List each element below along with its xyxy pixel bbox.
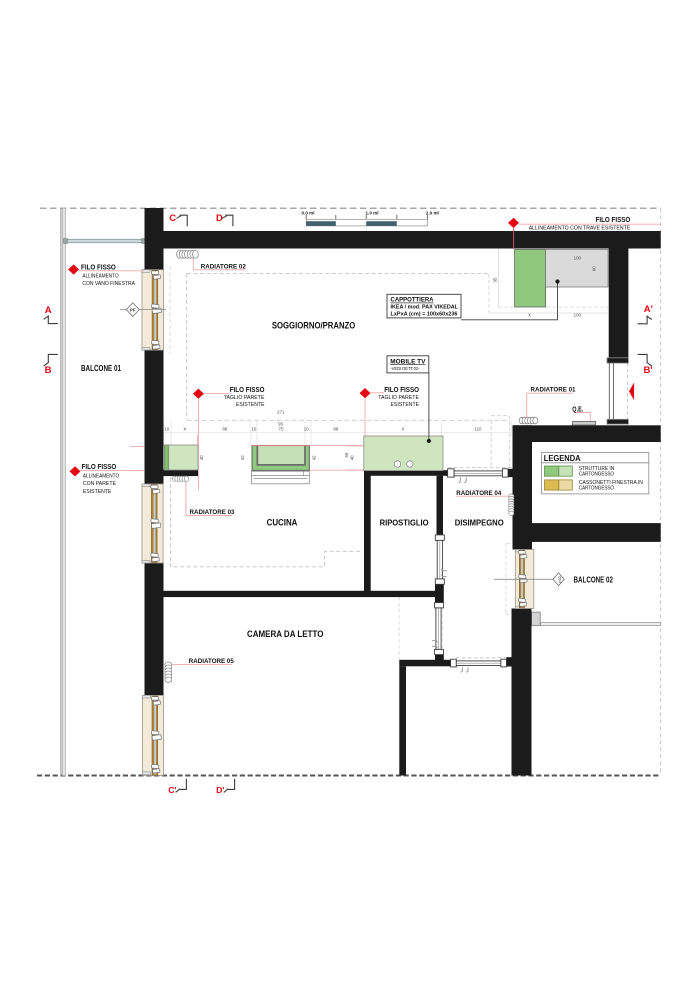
svg-text:BALCONE 01: BALCONE 01: [81, 364, 121, 373]
svg-text:2.0 ml: 2.0 ml: [426, 210, 439, 215]
svg-text:CAPPOTTIERA: CAPPOTTIERA: [391, 298, 435, 304]
svg-text:ALLINEAMENTO: ALLINEAMENTO: [83, 474, 120, 480]
svg-text:TAGLIO PARETE: TAGLIO PARETE: [224, 395, 265, 401]
svg-text:FILO FISSO: FILO FISSO: [384, 387, 419, 394]
svg-text:55: 55: [344, 452, 349, 457]
svg-text:40: 40: [199, 455, 204, 460]
svg-text:C: C: [169, 213, 176, 224]
svg-text:ESISTENTE: ESISTENTE: [236, 402, 265, 408]
svg-text:CARTONGESSO: CARTONGESSO: [579, 472, 614, 478]
svg-text:FILO FISSO: FILO FISSO: [596, 217, 631, 224]
svg-text:B': B': [644, 365, 653, 376]
svg-text:75: 75: [279, 427, 284, 432]
svg-text:110: 110: [475, 427, 483, 432]
svg-text:LxPxA (cm) = 100x60x236: LxPxA (cm) = 100x60x236: [391, 311, 458, 317]
svg-text:IKEA / mod. PAX VIKEDAL: IKEA / mod. PAX VIKEDAL: [391, 305, 459, 311]
svg-text:DISIMPEGNO: DISIMPEGNO: [455, 517, 505, 527]
svg-text:10: 10: [251, 427, 256, 432]
svg-text:PF: PF: [130, 307, 136, 312]
svg-text:LEGENDA: LEGENDA: [544, 454, 581, 463]
svg-text:40: 40: [350, 455, 355, 460]
svg-text:RADIATORE 01: RADIATORE 01: [531, 387, 576, 394]
svg-text:88: 88: [333, 427, 338, 432]
svg-text:TAGLIO PARETE: TAGLIO PARETE: [378, 395, 419, 401]
svg-text:BALCONE 02: BALCONE 02: [574, 576, 614, 585]
svg-text:ALLINEAMENTO CON TRAVE ESISTEN: ALLINEAMENTO CON TRAVE ESISTENTE: [529, 225, 631, 231]
svg-text:1.0 ml: 1.0 ml: [366, 210, 379, 215]
svg-text:CUCINA: CUCINA: [267, 518, 298, 528]
svg-text:b02: b02: [557, 575, 562, 582]
svg-text:C': C': [168, 785, 176, 795]
svg-text:MOBILE TV: MOBILE TV: [390, 359, 425, 365]
svg-text:95: 95: [493, 277, 498, 282]
svg-text:0.0 ml: 0.0 ml: [302, 210, 315, 215]
svg-text:100: 100: [574, 313, 582, 318]
svg-text:RADIATORE 04: RADIATORE 04: [456, 490, 501, 497]
svg-text:RADIATORE 05: RADIATORE 05: [189, 658, 234, 665]
svg-text:RADIATORE 03: RADIATORE 03: [190, 509, 235, 516]
svg-text:X: X: [528, 313, 531, 318]
svg-text:100: 100: [574, 256, 582, 261]
svg-text:ESISTENTE: ESISTENTE: [83, 489, 112, 495]
svg-text:60: 60: [592, 266, 597, 271]
svg-text:271: 271: [277, 410, 285, 415]
svg-text:D': D': [216, 785, 224, 795]
svg-text:CON VANO FINESTRA: CON VANO FINESTRA: [82, 281, 135, 287]
svg-text:ALLINEAMENTO: ALLINEAMENTO: [82, 273, 119, 279]
svg-text:42: 42: [240, 455, 245, 460]
svg-text:CARTONGESSO: CARTONGESSO: [579, 486, 614, 492]
svg-text:Q.E.: Q.E.: [572, 407, 583, 414]
svg-text:X: X: [402, 427, 405, 432]
svg-text:FILO FISSO: FILO FISSO: [81, 264, 116, 271]
svg-text:CAMERA DA LETTO: CAMERA DA LETTO: [247, 629, 324, 639]
svg-text:FILO FISSO: FILO FISSO: [230, 387, 265, 394]
svg-text:42: 42: [311, 455, 316, 460]
svg-text:-VEDI DETT.02-: -VEDI DETT.02-: [390, 366, 420, 371]
svg-text:10: 10: [164, 427, 169, 432]
svg-text:FILO FISSO: FILO FISSO: [82, 464, 117, 471]
svg-text:SOGGIORNO/PRANZO: SOGGIORNO/PRANZO: [272, 321, 356, 331]
svg-text:A': A': [644, 304, 653, 315]
svg-text:D: D: [216, 213, 223, 224]
svg-text:CON PARETE: CON PARETE: [83, 481, 116, 487]
svg-text:10: 10: [304, 427, 309, 432]
svg-text:A: A: [45, 305, 52, 316]
svg-text:RIPOSTIGLIO: RIPOSTIGLIO: [380, 517, 429, 527]
svg-text:ESISTENTE: ESISTENTE: [391, 402, 420, 408]
svg-text:RADIATORE 02: RADIATORE 02: [201, 263, 246, 270]
svg-text:X: X: [183, 427, 186, 432]
svg-text:B: B: [45, 365, 52, 376]
svg-text:88: 88: [222, 427, 227, 432]
